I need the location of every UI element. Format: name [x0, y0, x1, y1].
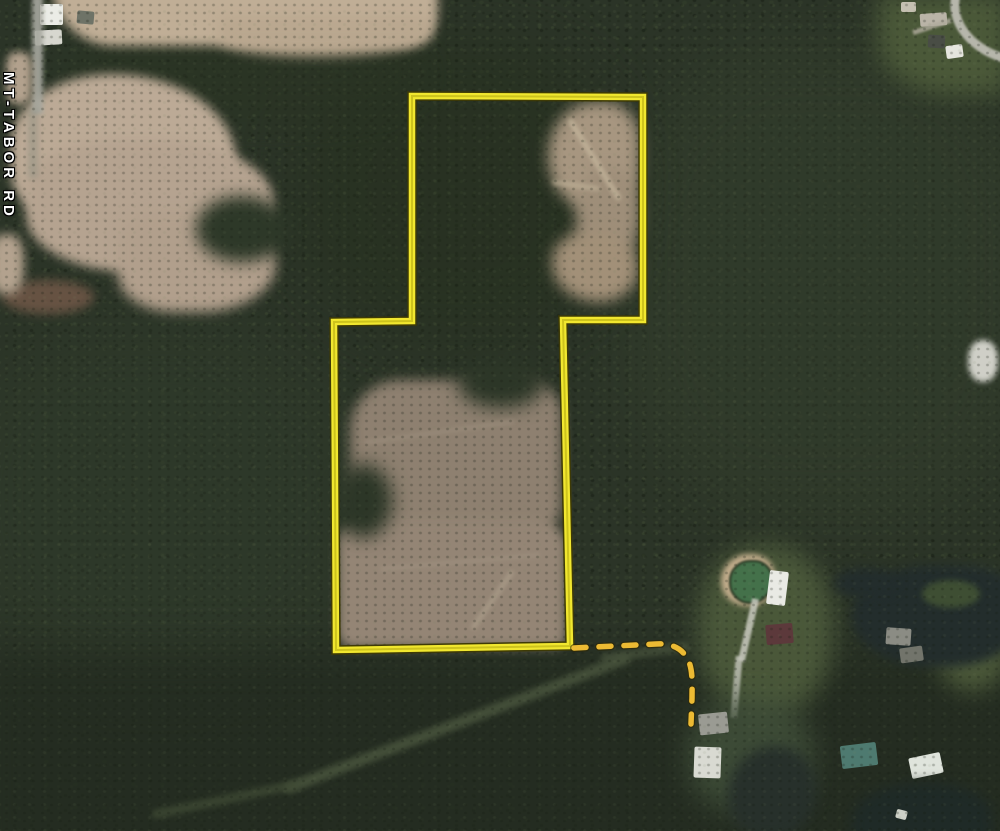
satellite-map-viewport[interactable]: MT-TABOR RD: [0, 0, 1000, 831]
annotation-overlay: [0, 0, 1000, 831]
parcel-boundary-main: [334, 96, 643, 650]
access-path-dashed: [574, 644, 692, 724]
road-label-mt-tabor-rd: MT-TABOR RD: [0, 72, 17, 220]
parcel-boundary-outline: [334, 96, 643, 650]
parcel-boundary-core: [334, 96, 643, 650]
access-path-dash-outline: [574, 644, 692, 724]
